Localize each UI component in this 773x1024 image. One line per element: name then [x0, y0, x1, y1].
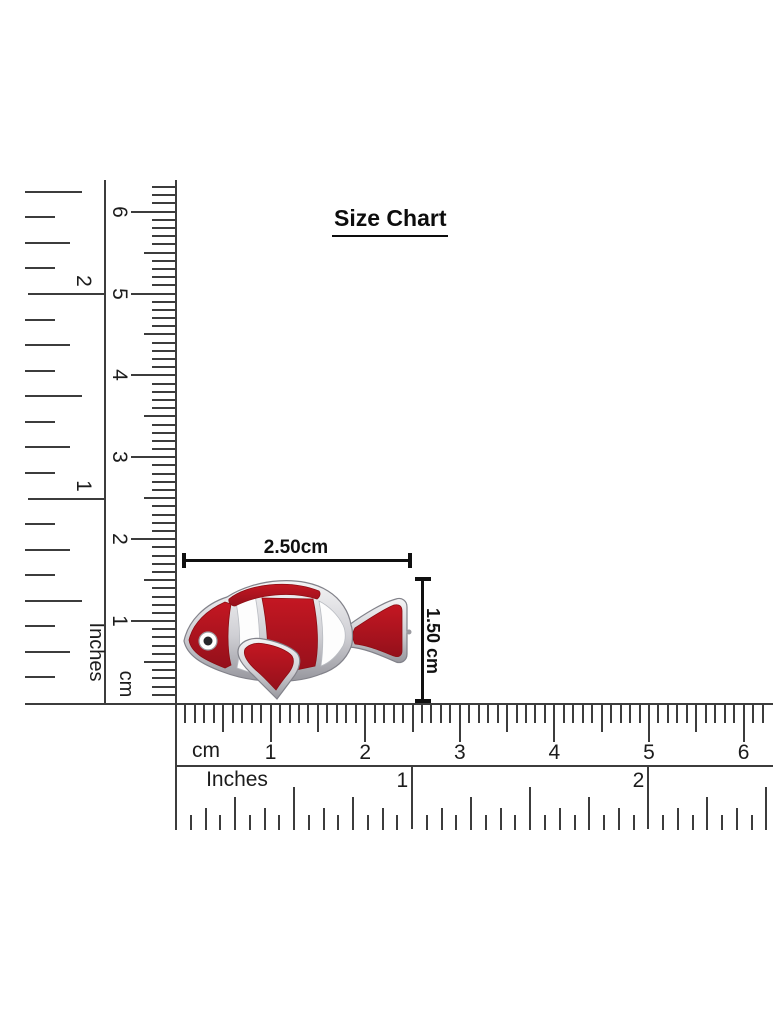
left-cm-tick — [144, 661, 175, 663]
left-cm-tick — [152, 366, 175, 368]
left-cm-tick — [152, 604, 175, 606]
left-cm-tick — [131, 293, 175, 295]
bottom-cm-tick — [468, 705, 470, 723]
left-cm-tick — [152, 489, 175, 491]
left-inch-tick — [25, 421, 55, 423]
bottom-inch-tick — [662, 815, 664, 830]
bottom-cm-tick — [629, 705, 631, 723]
bottom-inch-tick — [219, 815, 221, 830]
bottom-inch-tick — [323, 808, 325, 830]
left-cm-tick — [152, 227, 175, 229]
left-cm-tick — [152, 563, 175, 565]
bottom-cm-tick — [752, 705, 754, 723]
left-cm-tick — [131, 456, 175, 458]
left-inch-tick — [25, 472, 55, 474]
left-cm-tick — [152, 399, 175, 401]
fish-eye-pupil — [204, 637, 213, 646]
left-cm-tick — [152, 628, 175, 630]
left-cm-tick — [152, 407, 175, 409]
left-cm-ruler-number: 4 — [110, 365, 130, 385]
bottom-cm-tick — [534, 705, 536, 723]
bottom-cm-tick — [657, 705, 659, 723]
size-chart-image: Size Chart 1212345612345612 Inches cm cm… — [0, 0, 773, 1024]
left-inch-tick — [25, 191, 82, 193]
bottom-cm-tick — [459, 705, 461, 742]
left-cm-ruler-number: 3 — [110, 447, 130, 467]
bottom-cm-tick — [516, 705, 518, 723]
bottom-inch-tick — [633, 815, 635, 830]
bottom-cm-tick — [506, 705, 508, 732]
left-cm-tick — [152, 669, 175, 671]
left-inch-tick — [25, 600, 82, 602]
left-cm-tick — [152, 694, 175, 696]
bottom-inch-tick — [574, 815, 576, 830]
bottom-inch-tick — [485, 815, 487, 830]
bottom-cm-tick — [620, 705, 622, 723]
bottom-inch-tick — [618, 808, 620, 830]
left-cm-tick — [152, 358, 175, 360]
bottom-inch-tick — [441, 808, 443, 830]
bottom-inch-tick — [205, 808, 207, 830]
left-cm-tick — [152, 612, 175, 614]
bottom-inch-tick — [647, 767, 649, 829]
bottom-cm-tick — [449, 705, 451, 723]
clownfish-charm-image — [181, 568, 413, 708]
left-cm-tick — [144, 415, 175, 417]
left-inch-tick — [25, 549, 70, 551]
left-cm-tick — [152, 473, 175, 475]
bottom-inches-unit-label: Inches — [206, 769, 268, 789]
bottom-cm-tick — [544, 705, 546, 723]
left-cm-tick — [152, 587, 175, 589]
left-cm-tick — [152, 342, 175, 344]
bottom-cm-unit-label: cm — [191, 740, 221, 760]
bottom-cm-tick — [676, 705, 678, 723]
left-inch-tick — [25, 676, 55, 678]
left-cm-tick — [152, 219, 175, 221]
left-inch-tick — [25, 395, 82, 397]
left-cm-tick — [152, 350, 175, 352]
bottom-cm-tick — [430, 705, 432, 723]
bottom-cm-tick — [639, 705, 641, 723]
bottom-inch-tick — [692, 815, 694, 830]
bottom-cm-tick — [582, 705, 584, 723]
left-cm-tick — [152, 186, 175, 188]
left-inch-tick — [25, 651, 70, 653]
bottom-inch-tick — [426, 815, 428, 830]
left-cm-tick — [152, 686, 175, 688]
bottom-inch-tick — [765, 787, 767, 830]
bottom-cm-tick — [695, 705, 697, 732]
bottom-cm-tick — [412, 705, 414, 732]
bottom-cm-tick — [601, 705, 603, 732]
bottom-cm-ruler-number: 1 — [261, 742, 281, 762]
left-cm-tick — [152, 514, 175, 516]
bottom-inch-tick — [514, 815, 516, 830]
left-cm-tick — [152, 325, 175, 327]
left-cm-tick — [152, 424, 175, 426]
left-inch-tick — [25, 446, 70, 448]
left-cm-ruler-number: 6 — [110, 202, 130, 222]
left-cm-tick — [152, 522, 175, 524]
bottom-cm-ruler-number: 5 — [639, 742, 659, 762]
bottom-cm-tick — [724, 705, 726, 723]
bottom-cm-tick — [591, 705, 593, 723]
left-cm-tick — [152, 268, 175, 270]
bottom-cm-tick — [497, 705, 499, 723]
left-inch-tick — [25, 242, 70, 244]
height-dimension-bottom-cap — [415, 699, 431, 703]
bottom-inch-tick — [278, 815, 280, 830]
bottom-cm-tick — [440, 705, 442, 723]
left-inch-ruler-number: 1 — [74, 476, 94, 496]
width-dimension-right-cap — [408, 553, 412, 568]
left-cm-tick — [144, 497, 175, 499]
bottom-cm-tick — [222, 705, 224, 732]
left-cm-tick — [152, 391, 175, 393]
left-inch-tick — [25, 344, 70, 346]
bottom-cm-tick — [478, 705, 480, 723]
bottom-inch-tick — [500, 808, 502, 830]
bottom-cm-tick — [705, 705, 707, 723]
bottom-inch-tick — [234, 797, 236, 830]
left-cm-tick — [152, 677, 175, 679]
left-cm-tick — [152, 464, 175, 466]
left-inch-tick — [25, 267, 55, 269]
left-cm-ruler-number: 2 — [110, 529, 130, 549]
left-cm-ruler-number: 5 — [110, 284, 130, 304]
bottom-cm-tick — [421, 705, 423, 723]
left-inch-tick — [25, 319, 55, 321]
left-cm-tick — [152, 645, 175, 647]
bottom-cm-ruler-number: 3 — [450, 742, 470, 762]
left-cm-tick — [131, 374, 175, 376]
left-cm-tick — [152, 636, 175, 638]
bottom-inch-tick — [337, 815, 339, 830]
page-title: Size Chart — [332, 205, 448, 237]
bottom-cm-tick — [733, 705, 735, 723]
bottom-cm-tick — [667, 705, 669, 723]
left-cm-tick — [131, 620, 175, 622]
left-cm-tick — [144, 252, 175, 254]
bottom-cm-tick — [563, 705, 565, 723]
left-cm-tick — [152, 309, 175, 311]
bottom-inch-tick — [308, 815, 310, 830]
bottom-inch-tick — [603, 815, 605, 830]
bottom-inch-ruler-number: 1 — [390, 770, 408, 790]
bottom-inch-tick — [264, 808, 266, 830]
bottom-cm-tick — [762, 705, 764, 723]
bottom-cm-tick — [572, 705, 574, 723]
left-cm-tick — [144, 333, 175, 335]
bottom-inch-ruler-number: 2 — [626, 770, 644, 790]
left-cm-tick — [131, 211, 175, 213]
bottom-cm-ruler-number: 2 — [355, 742, 375, 762]
left-inch-tick — [28, 498, 104, 500]
left-cm-tick — [152, 546, 175, 548]
left-inch-tick — [25, 216, 55, 218]
bottom-cm-tick — [743, 705, 745, 742]
left-cm-tick — [152, 317, 175, 319]
left-cm-tick — [152, 555, 175, 557]
left-inch-tick — [25, 523, 55, 525]
bottom-inch-tick — [751, 815, 753, 830]
width-dimension-label: 2.50cm — [236, 537, 356, 557]
bottom-inch-tick — [382, 808, 384, 830]
left-inch-tick — [28, 293, 104, 295]
bottom-cm-tick — [648, 705, 650, 742]
bottom-inch-tick — [529, 787, 531, 830]
left-cm-tick — [152, 202, 175, 204]
bottom-inch-tick — [470, 797, 472, 830]
bottom-inch-tick — [721, 815, 723, 830]
left-cm-tick — [152, 571, 175, 573]
bottom-inch-tick — [736, 808, 738, 830]
bottom-cm-tick — [317, 705, 319, 732]
bottom-cm-ruler-number: 4 — [544, 742, 564, 762]
left-cm-tick — [152, 260, 175, 262]
bottom-inch-tick — [544, 815, 546, 830]
bottom-cm-tick — [525, 705, 527, 723]
left-cm-tick — [131, 538, 175, 540]
left-cm-tick — [152, 301, 175, 303]
height-dimension-top-cap — [415, 577, 431, 581]
bottom-cm-tick — [364, 705, 366, 742]
left-cm-tick — [152, 432, 175, 434]
left-cm-tick — [152, 276, 175, 278]
bottom-inch-tick — [249, 815, 251, 830]
left-cm-tick — [152, 530, 175, 532]
left-cm-tick — [152, 194, 175, 196]
left-inch-tick — [25, 574, 55, 576]
bottom-cm-tick — [487, 705, 489, 723]
bottom-inch-tick — [411, 767, 413, 829]
bottom-inch-tick — [455, 815, 457, 830]
height-dimension-label: 1.50 cm — [423, 596, 443, 686]
left-cm-tick — [144, 579, 175, 581]
left-cm-tick — [152, 383, 175, 385]
bottom-cm-tick — [610, 705, 612, 723]
left-cm-tick — [152, 481, 175, 483]
left-cm-tick — [152, 284, 175, 286]
bottom-cm-ruler-number: 6 — [734, 742, 754, 762]
bottom-inch-tick — [352, 797, 354, 830]
bottom-inch-tick — [293, 787, 295, 830]
left-cm-tick — [152, 448, 175, 450]
bottom-inch-tick — [367, 815, 369, 830]
left-inch-tick — [25, 370, 55, 372]
width-dimension-left-cap — [182, 553, 186, 568]
left-cm-tick — [152, 235, 175, 237]
bottom-inch-tick — [677, 808, 679, 830]
left-inches-unit-label: Inches — [86, 617, 106, 687]
left-cm-unit-label: cm — [116, 664, 136, 704]
fish-tail-nub — [407, 630, 412, 635]
bottom-inch-tick — [396, 815, 398, 830]
left-cm-tick — [152, 653, 175, 655]
bottom-cm-tick — [686, 705, 688, 723]
left-cm-ruler-edge-line — [175, 180, 177, 830]
bottom-inch-tick — [706, 797, 708, 830]
width-dimension-line — [183, 559, 411, 562]
bottom-inch-tick — [190, 815, 192, 830]
left-inch-ruler-number: 2 — [74, 271, 94, 291]
left-inch-tick — [25, 625, 55, 627]
left-cm-tick — [152, 505, 175, 507]
bottom-cm-tick — [553, 705, 555, 742]
bottom-inch-tick — [559, 808, 561, 830]
left-cm-tick — [152, 596, 175, 598]
bottom-ruler-divider-line — [175, 765, 773, 767]
bottom-cm-tick — [714, 705, 716, 723]
left-cm-tick — [152, 243, 175, 245]
bottom-inch-tick — [588, 797, 590, 830]
left-cm-tick — [152, 440, 175, 442]
left-cm-ruler-number: 1 — [110, 611, 130, 631]
bottom-cm-tick — [270, 705, 272, 742]
